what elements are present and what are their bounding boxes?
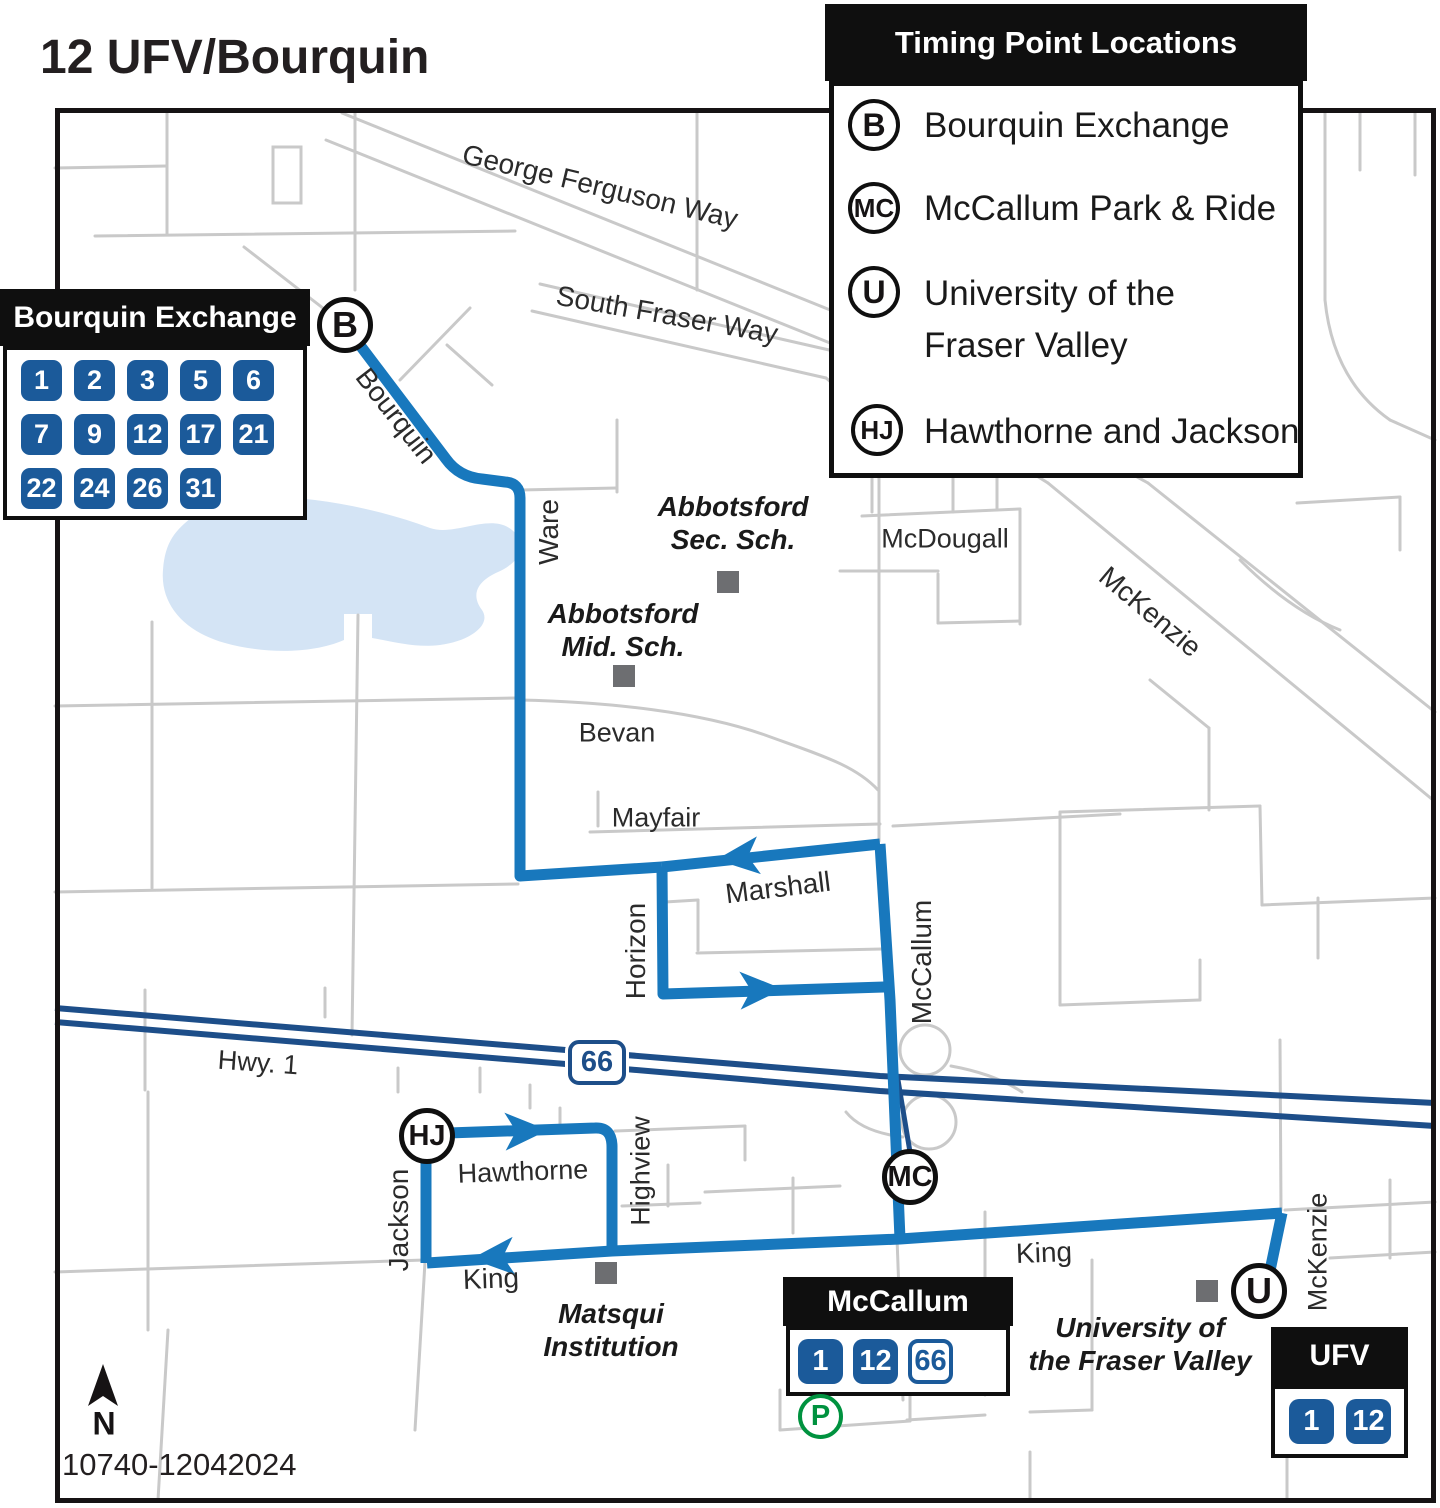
landmark-matsqui: Matsqui Institution (543, 1297, 678, 1363)
street-label-bevan: Bevan (579, 718, 656, 749)
route-badge: 26 (127, 468, 168, 509)
legend-circle-u: U (848, 266, 900, 318)
ufv-box-body: 1 12 (1271, 1385, 1408, 1458)
timing-point-hj: HJ (399, 1108, 455, 1164)
ufv-marker (1196, 1280, 1218, 1302)
landmark-abbotsford-sec: Abbotsford Sec. Sch. (658, 490, 809, 556)
bourquin-box-header: Bourquin Exchange (0, 289, 310, 346)
route-badge: 24 (74, 468, 115, 509)
abbotsford-sec-marker (717, 571, 739, 593)
north-arrow-icon (88, 1364, 118, 1406)
legend-label-u-line1: University of the (924, 274, 1175, 314)
street-label-horizon: Horizon (620, 903, 652, 999)
street-label-highview: Highview (626, 1116, 657, 1226)
route-badge: 21 (233, 414, 274, 455)
landmark-line: Mid. Sch. (562, 631, 685, 662)
route-badge: 12 (127, 414, 168, 455)
street-label-king-west: King (462, 1262, 519, 1296)
street-label-mcdougall: McDougall (881, 524, 1009, 555)
route-badge: 1 (798, 1339, 843, 1384)
street-label-hwy1: Hwy. 1 (217, 1045, 299, 1082)
route-badge: 12 (853, 1339, 898, 1384)
legend-label-hj: Hawthorne and Jackson (924, 412, 1300, 452)
landmark-line: Abbotsford (658, 491, 809, 522)
route-badge: 3 (127, 360, 168, 401)
abbotsford-mid-marker (613, 665, 635, 687)
route-badge: 12 (1346, 1399, 1391, 1444)
landmark-line: Institution (543, 1331, 678, 1362)
timing-point-u: U (1231, 1263, 1287, 1319)
landmark-ufv: University of the Fraser Valley (1028, 1311, 1251, 1377)
route-badge: 31 (180, 468, 221, 509)
legend-label-mc: McCallum Park & Ride (924, 189, 1276, 229)
ufv-box-header: UFV (1271, 1327, 1408, 1385)
map-code: 10740-12042024 (62, 1447, 296, 1483)
legend-label-b: Bourquin Exchange (924, 106, 1230, 146)
timing-point-b: B (317, 297, 373, 353)
route-badge: 6 (233, 360, 274, 401)
street-label-jackson: Jackson (383, 1169, 415, 1272)
route-badge: 9 (74, 414, 115, 455)
landmark-line: Abbotsford (548, 598, 699, 629)
landmark-line: Sec. Sch. (671, 524, 796, 555)
matsqui-marker (595, 1262, 617, 1284)
route-badge: 1 (21, 360, 62, 401)
mccallum-box-header: McCallum (783, 1277, 1013, 1326)
legend-label-u-line2: Fraser Valley (924, 326, 1128, 366)
legend-circle-hj: HJ (851, 404, 903, 456)
route-badge: 22 (21, 468, 62, 509)
route-badge: 2 (74, 360, 115, 401)
timing-point-mc: MC (882, 1149, 938, 1205)
street-label-king-east: King (1015, 1236, 1072, 1270)
route-badge: 1 (1289, 1399, 1334, 1444)
route-badge: 5 (180, 360, 221, 401)
ufv-route-badges: 1 12 (1289, 1399, 1391, 1444)
street-label-mckenzie-lower: McKenzie (1303, 1193, 1334, 1312)
route-badge: 17 (180, 414, 221, 455)
street-label-hawthorne: Hawthorne (457, 1154, 589, 1190)
mccallum-route-badges: 1 12 66 P (798, 1339, 1006, 1439)
landmark-line: University of (1055, 1312, 1225, 1343)
legend-circle-b: B (848, 99, 900, 151)
landmark-line: Matsqui (558, 1298, 664, 1329)
mccallum-box-body: 1 12 66 P (786, 1326, 1010, 1396)
street-label-mayfair: Mayfair (612, 803, 701, 834)
street-label-ware: Ware (533, 499, 565, 565)
landmark-line: the Fraser Valley (1028, 1345, 1251, 1376)
parking-icon: P (798, 1394, 843, 1439)
timing-legend-header: Timing Point Locations (825, 4, 1307, 81)
compass-north-label: N (92, 1406, 115, 1443)
landmark-abbotsford-mid: Abbotsford Mid. Sch. (548, 597, 699, 663)
page-title: 12 UFV/Bourquin (40, 30, 429, 85)
bourquin-box-body: 1 2 3 5 6 7 9 12 17 21 22 24 26 31 (3, 346, 307, 520)
bourquin-route-badges: 1 2 3 5 6 7 9 12 17 21 22 24 26 31 (21, 360, 291, 509)
route-badge-66: 66 (908, 1339, 953, 1384)
legend-circle-mc: MC (848, 182, 900, 234)
street-label-mccallum: McCallum (906, 900, 938, 1024)
transit-map-page: 12 UFV/Bourquin George Ferguson Way Sout… (0, 0, 1440, 1508)
highway-66-shield: 66 (568, 1040, 626, 1085)
route-badge: 7 (21, 414, 62, 455)
